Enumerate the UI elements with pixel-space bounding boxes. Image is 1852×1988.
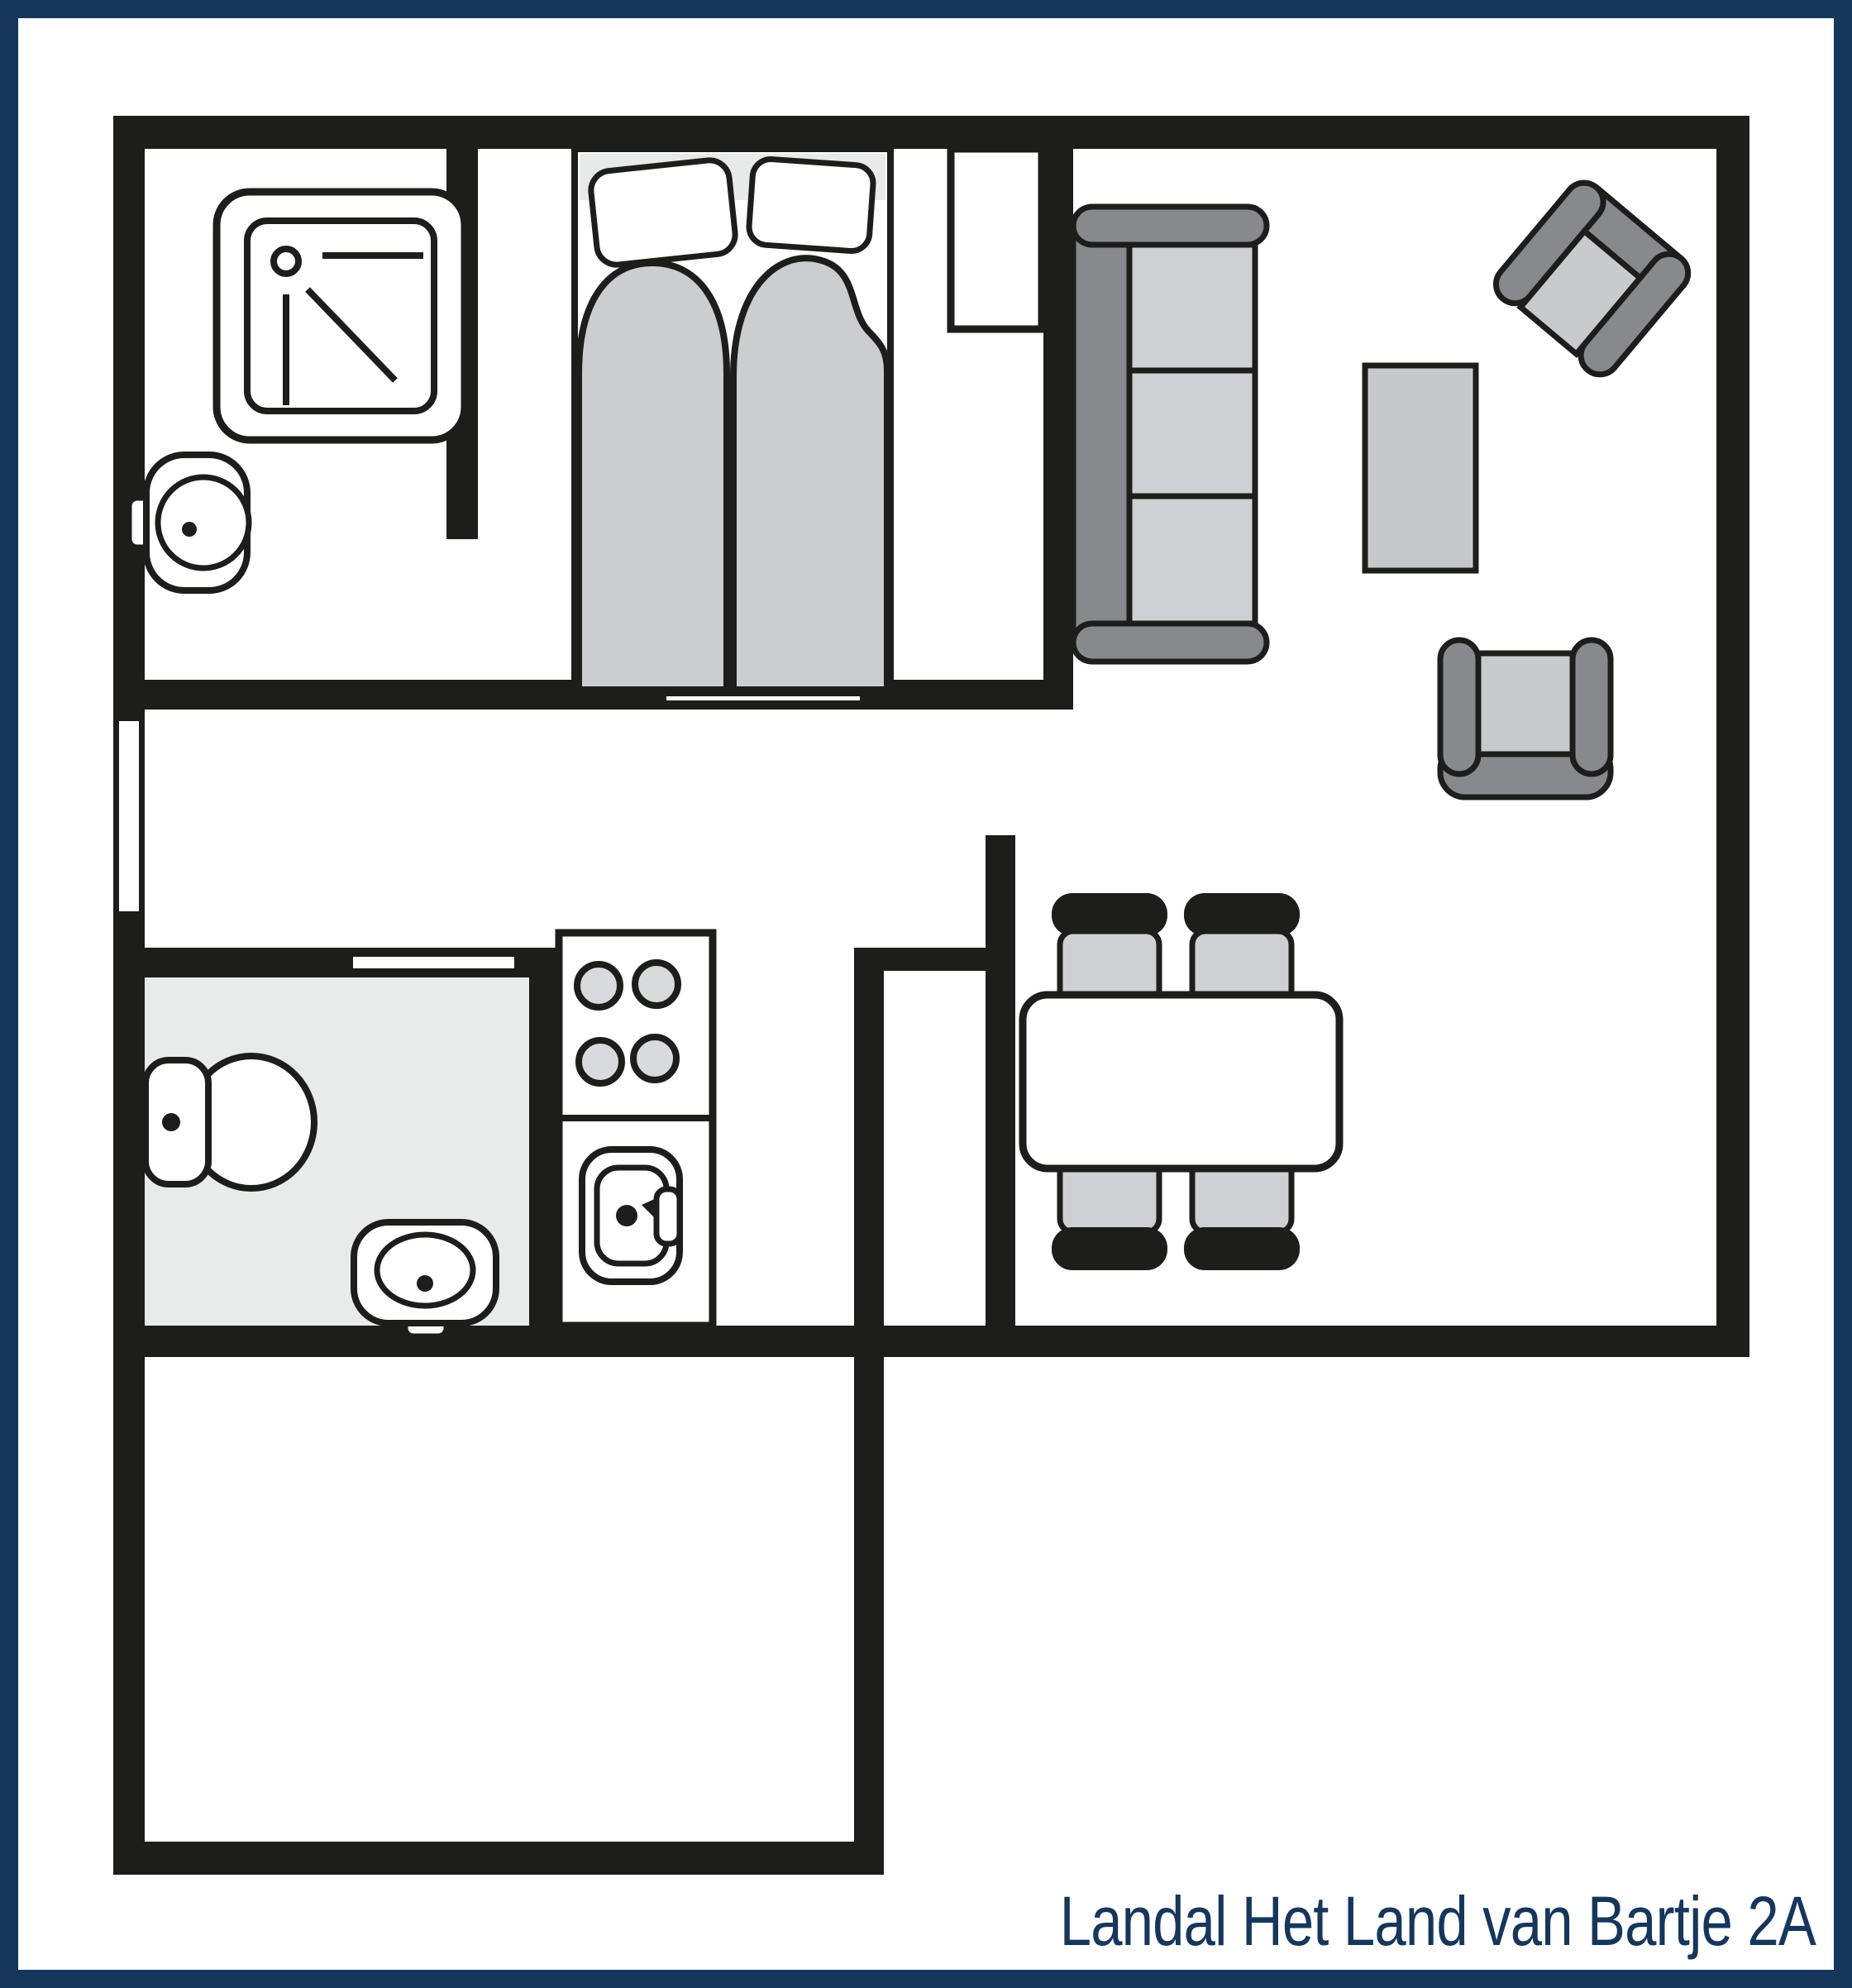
coffee-table — [1365, 366, 1476, 571]
toilet-icon — [146, 1056, 314, 1188]
bathroom-sink-icon — [129, 455, 249, 590]
stove-burner-2 — [635, 963, 678, 1006]
wall-top — [113, 116, 1749, 149]
wall-right — [1716, 116, 1749, 1357]
wall-bottomroom-right — [854, 948, 884, 1875]
pillow-left — [589, 159, 737, 267]
shower-inner — [247, 221, 434, 411]
frame-border-left — [0, 0, 18, 1988]
floor-plan-svg: Landal Het Land van Bartje 2A — [0, 0, 1852, 1988]
armchair2-arm-left — [1440, 640, 1478, 774]
wall-bottom-main — [113, 1326, 1749, 1357]
wall-bedroom-right — [1043, 149, 1073, 710]
shower-tray-icon — [217, 192, 465, 440]
frame-border-right — [1834, 0, 1852, 1988]
dining-chair-bottom-2-back — [1184, 1227, 1300, 1270]
frame-border-bottom — [0, 1970, 1852, 1988]
armchair2-arm-right — [1573, 640, 1611, 774]
sofa-cushion-1 — [1129, 245, 1255, 370]
floor-plan-page: Landal Het Land van Bartje 2A — [0, 0, 1852, 1988]
stove-burner-3 — [579, 1040, 622, 1083]
sofa-arm-top — [1073, 207, 1267, 245]
wall-dining-left — [986, 835, 1015, 1357]
wall-bottomroom-bottom — [113, 1842, 884, 1875]
duvet-left — [579, 263, 727, 690]
wall-corridor-stub — [854, 948, 1015, 971]
window-opening-hall — [119, 721, 139, 911]
shower-head — [274, 249, 298, 274]
wall-left — [113, 116, 145, 1875]
duvet-right — [733, 258, 887, 690]
toilet-sink-drain — [417, 1275, 433, 1292]
bathroom-sink-basin — [158, 477, 249, 568]
kitchen-sink-tap — [656, 1189, 680, 1244]
sofa — [1073, 207, 1267, 662]
door-opening-toilet — [353, 957, 514, 968]
bathroom-sink-drain — [182, 522, 197, 537]
stove-burner-4 — [633, 1037, 676, 1080]
nightstand — [951, 149, 1042, 329]
dining-table — [1023, 995, 1339, 1168]
wall-kitchen-divider — [529, 948, 559, 1326]
armchair2-seat — [1478, 653, 1573, 754]
kitchen-counter — [559, 933, 713, 1326]
sofa-cushion-3 — [1129, 496, 1255, 624]
toilet-sink-basin — [377, 1235, 473, 1306]
toilet-sink-icon — [354, 1222, 496, 1336]
frame-border-top — [0, 0, 1852, 18]
kitchen-sink-drain — [616, 1205, 637, 1226]
plan-title-text: Landal Het Land van Bartje 2A — [1060, 1883, 1817, 1961]
toilet-flush — [162, 1113, 180, 1131]
stove-burner-1 — [577, 964, 620, 1007]
sofa-arm-bottom — [1073, 624, 1267, 662]
sofa-cushion-2 — [1129, 370, 1255, 496]
pillow-right — [748, 158, 875, 252]
dining-chair-bottom-1-back — [1052, 1227, 1167, 1270]
sofa-back — [1073, 207, 1131, 662]
armchair-small — [1440, 640, 1611, 797]
